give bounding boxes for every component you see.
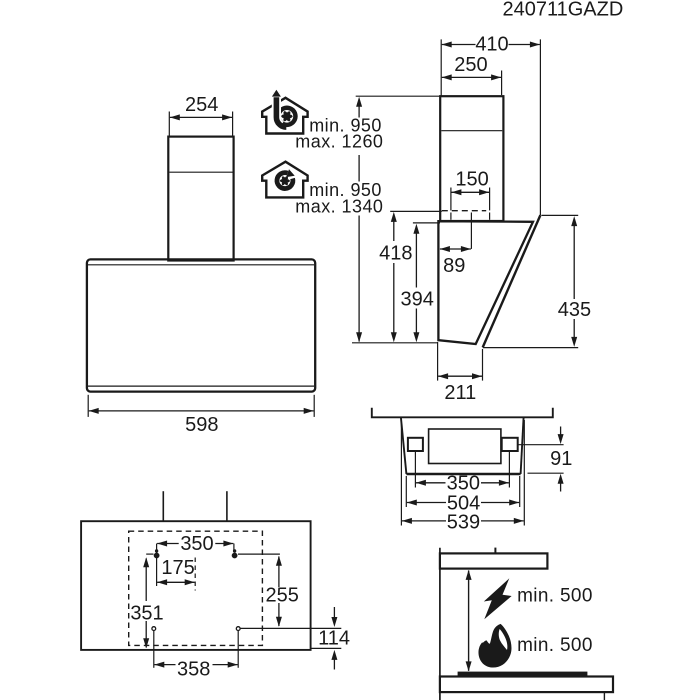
svg-text:114: 114 <box>318 627 350 649</box>
svg-text:394: 394 <box>401 288 434 310</box>
svg-text:max. 1340: max. 1340 <box>295 196 383 216</box>
svg-text:418: 418 <box>379 243 412 265</box>
svg-text:254: 254 <box>185 94 218 116</box>
svg-text:175: 175 <box>161 557 194 579</box>
svg-text:410: 410 <box>475 34 508 56</box>
svg-text:351: 351 <box>130 603 163 625</box>
svg-text:min. 500: min. 500 <box>517 635 593 656</box>
svg-text:250: 250 <box>454 54 487 76</box>
svg-text:435: 435 <box>558 299 591 321</box>
svg-text:91: 91 <box>550 448 572 470</box>
svg-text:255: 255 <box>266 585 299 607</box>
svg-text:350: 350 <box>180 533 213 555</box>
svg-text:min. 500: min. 500 <box>517 585 593 606</box>
svg-text:539: 539 <box>447 511 480 533</box>
svg-text:150: 150 <box>455 169 488 191</box>
svg-text:350: 350 <box>447 472 480 494</box>
svg-text:358: 358 <box>177 658 210 680</box>
svg-text:598: 598 <box>185 414 218 436</box>
svg-text:211: 211 <box>444 382 476 404</box>
svg-text:max. 1260: max. 1260 <box>295 131 383 151</box>
svg-text:89: 89 <box>443 255 465 277</box>
svg-text:240711GAZD: 240711GAZD <box>503 0 624 21</box>
